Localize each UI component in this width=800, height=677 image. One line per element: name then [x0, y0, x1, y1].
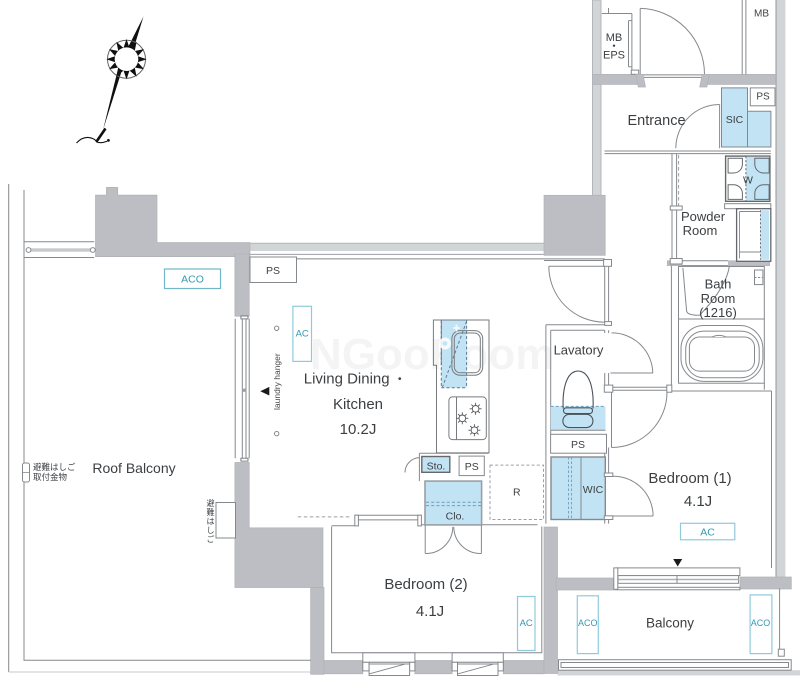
svg-text:4.1J: 4.1J — [416, 603, 444, 620]
svg-text:避: 避 — [207, 498, 215, 508]
svg-text:Kitchen: Kitchen — [333, 396, 383, 413]
svg-text:SIC: SIC — [726, 114, 744, 126]
svg-text:Room: Room — [701, 291, 736, 306]
svg-text:10.2J: 10.2J — [340, 421, 377, 438]
svg-text:Room: Room — [683, 223, 718, 238]
svg-text:PS: PS — [571, 439, 585, 451]
svg-text:MB: MB — [754, 9, 769, 20]
svg-text:Bedroom (2): Bedroom (2) — [384, 576, 467, 593]
svg-text:4.1J: 4.1J — [684, 493, 712, 510]
svg-text:Lavatory: Lavatory — [554, 343, 604, 358]
svg-text:し: し — [207, 526, 215, 535]
svg-text:EPS: EPS — [603, 50, 625, 62]
svg-text:ACO: ACO — [578, 618, 598, 628]
svg-text:ACO: ACO — [181, 274, 204, 286]
svg-text:laundry hanger: laundry hanger — [272, 353, 282, 410]
svg-text:Clo.: Clo. — [446, 511, 465, 523]
svg-text:Balcony: Balcony — [646, 616, 694, 631]
svg-text:Sto.: Sto. — [427, 461, 446, 473]
svg-text:PS: PS — [266, 265, 280, 277]
svg-text:Powder: Powder — [681, 209, 726, 224]
svg-text:Bath: Bath — [705, 276, 732, 291]
svg-text:Entrance: Entrance — [627, 113, 685, 129]
svg-text:R: R — [513, 487, 521, 499]
svg-text:PS: PS — [465, 461, 479, 473]
svg-text:取付金物: 取付金物 — [33, 472, 68, 482]
svg-text:は: は — [207, 517, 215, 526]
svg-text:難: 難 — [207, 507, 215, 517]
svg-text:AC: AC — [296, 329, 309, 340]
svg-text:ご: ご — [207, 534, 215, 544]
svg-text:避難はしご: 避難はしご — [33, 462, 76, 472]
svg-text:AC: AC — [700, 527, 715, 539]
svg-text:W: W — [743, 175, 753, 187]
svg-text:WIC: WIC — [583, 484, 604, 496]
svg-text:AC: AC — [520, 618, 533, 629]
svg-text:PS: PS — [756, 92, 770, 103]
svg-text:Roof Balcony: Roof Balcony — [92, 460, 175, 476]
svg-text:Bedroom (1): Bedroom (1) — [648, 470, 731, 487]
svg-text:ACO: ACO — [751, 618, 771, 628]
svg-text:(1216): (1216) — [699, 305, 737, 320]
svg-text:Living Dining ・: Living Dining ・ — [304, 371, 407, 388]
